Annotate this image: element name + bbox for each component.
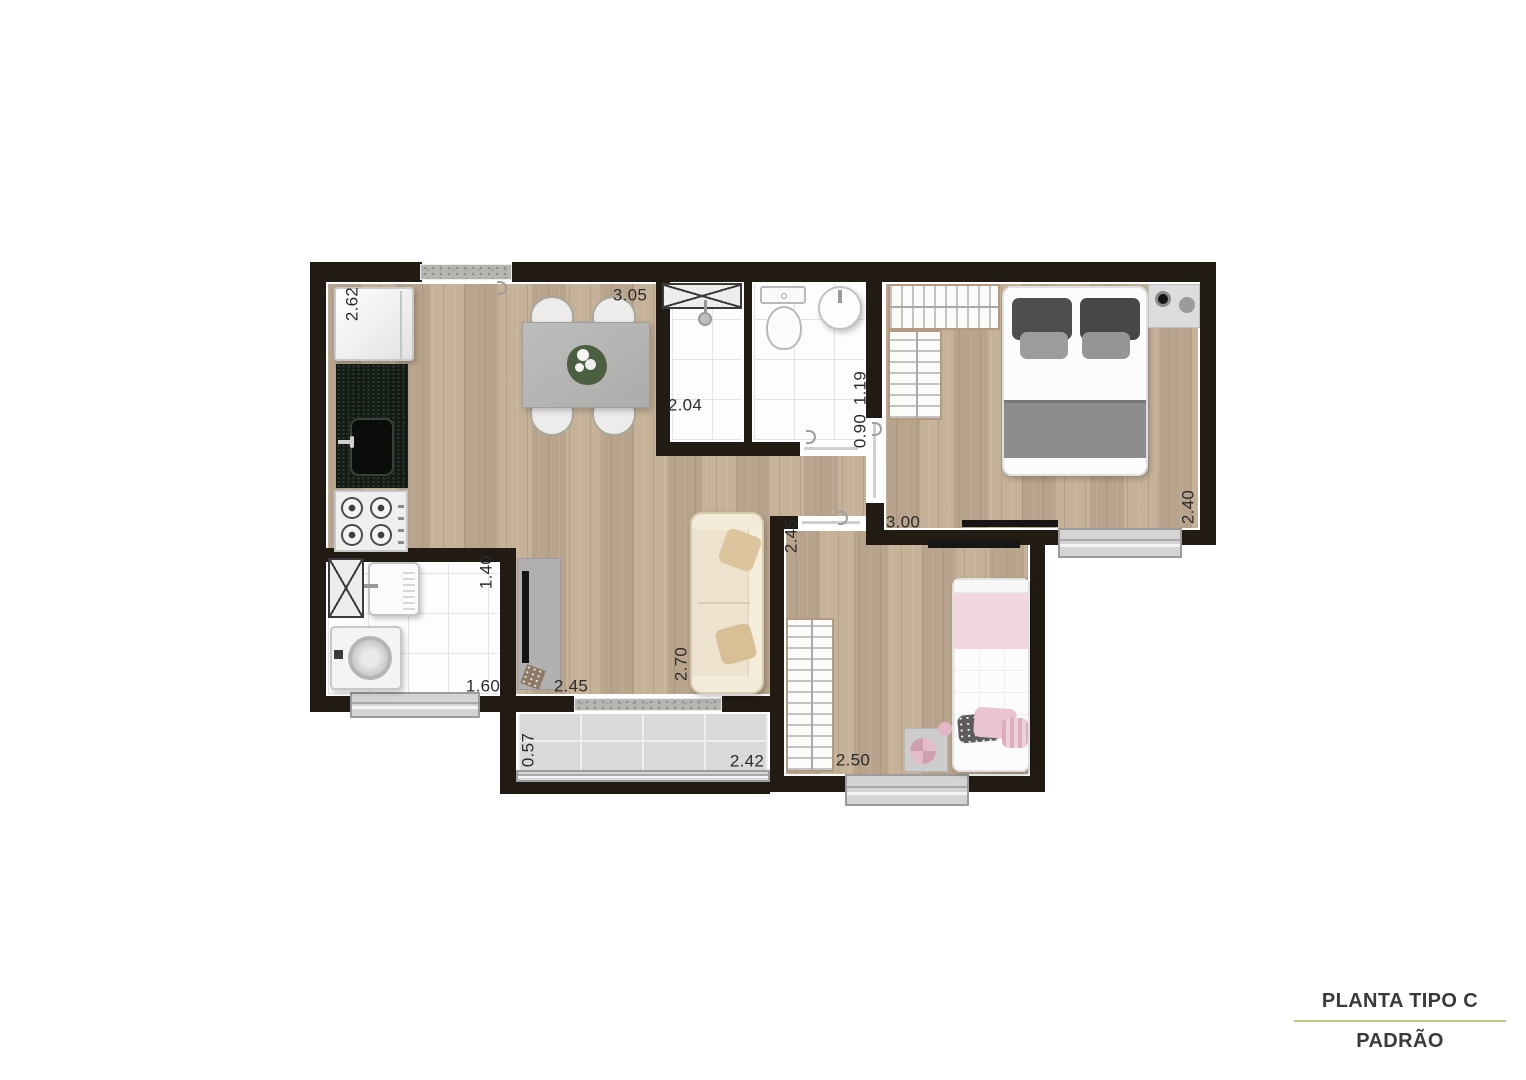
kitchen-counter xyxy=(336,364,408,488)
tv-rack xyxy=(517,558,561,690)
shower-arm xyxy=(704,300,707,314)
dimension-label: 3.00 xyxy=(886,514,920,531)
title-divider xyxy=(1294,1020,1506,1022)
bed2-pillow-striped xyxy=(1002,718,1028,748)
washer-drum xyxy=(348,636,392,680)
plan-title: PLANTA TIPO C xyxy=(1294,990,1506,1013)
bed-pillow-gray xyxy=(1082,332,1130,359)
single-bed xyxy=(952,578,1030,772)
stove-burner xyxy=(341,497,363,519)
stove-burner xyxy=(370,524,392,546)
toilet-bowl xyxy=(766,306,802,350)
wall-bedroom2-bottom-left xyxy=(770,776,847,792)
fridge-door-seam xyxy=(400,291,402,359)
bedroom2-window xyxy=(845,774,969,806)
bed2-sheet-fold xyxy=(954,580,1028,593)
wall-laundry-right xyxy=(500,548,516,792)
bedroom2-door-opening xyxy=(798,516,866,529)
double-bed xyxy=(1002,286,1148,476)
dimension-label: 2.45 xyxy=(554,678,588,695)
sofa-armrest xyxy=(692,676,762,692)
laundry-window xyxy=(350,692,480,718)
balcony-door-threshold xyxy=(574,698,722,711)
stove-burner xyxy=(341,524,363,546)
tv xyxy=(522,571,529,663)
dimension-label: 2.45 xyxy=(783,519,800,553)
wall-top-left xyxy=(310,262,422,282)
kitchen-faucet-spout xyxy=(350,436,354,448)
wall-hall-corner xyxy=(866,503,884,545)
tv-rack-decor xyxy=(520,664,546,690)
wall-left-exterior xyxy=(310,262,326,712)
washer-control xyxy=(334,650,343,659)
toilet-flush-button xyxy=(781,293,787,299)
flower-bloom xyxy=(575,363,584,372)
wall-bedroom2-bottom-right xyxy=(967,776,1045,792)
floor-plan-page: 2.62 3.05 2.04 1.19 0.90 3.00 2.40 1.40 … xyxy=(0,0,1526,1080)
wall-bathroom-bottom xyxy=(656,442,800,456)
dimension-label: 2.70 xyxy=(673,647,690,681)
dimension-label: 0.57 xyxy=(520,733,537,767)
sofa xyxy=(690,512,764,694)
dimension-label: 2.62 xyxy=(344,287,361,321)
dimension-label: 2.50 xyxy=(836,752,870,769)
dimension-label: 1.19 xyxy=(852,371,869,405)
toilet-tank xyxy=(760,286,806,304)
bed-blanket xyxy=(1004,400,1146,458)
pink-pouf xyxy=(910,738,936,764)
tank-ridges xyxy=(403,568,415,610)
basin-faucet-icon xyxy=(838,290,842,303)
nightstand-decor xyxy=(1179,297,1195,313)
dimension-label: 1.60 xyxy=(466,678,500,695)
bed-pillow-gray xyxy=(1020,332,1068,359)
stove-knobs xyxy=(398,498,404,544)
dimension-label: 1.40 xyxy=(478,555,495,589)
bed2-pink-blanket xyxy=(954,593,1028,649)
dimension-label: 0.90 xyxy=(852,414,869,448)
table-lamp-icon xyxy=(1155,291,1171,307)
wall-right-exterior xyxy=(1200,262,1216,545)
dining-table xyxy=(522,322,650,408)
entrance-door-threshold xyxy=(420,264,512,280)
nightstand xyxy=(1148,284,1200,328)
wall-balcony-bottom xyxy=(500,780,770,794)
bedroom2-wardrobe xyxy=(786,618,834,772)
bathroom-shaft-box xyxy=(662,283,742,309)
washing-machine xyxy=(330,626,402,690)
wall-bedroom2-right xyxy=(1030,545,1045,792)
stove-burner xyxy=(370,497,392,519)
dimension-label: 2.42 xyxy=(730,753,764,770)
title-block: PLANTA TIPO C PADRÃO xyxy=(1294,990,1506,1053)
bedroom1-window xyxy=(1058,528,1182,558)
pink-decor xyxy=(938,722,952,736)
bedroom2-track-bar xyxy=(928,541,1020,548)
balcony-rail xyxy=(516,770,770,782)
sofa-cushion-seam xyxy=(698,602,750,604)
flower-centerpiece xyxy=(567,345,607,385)
tank-faucet-icon xyxy=(364,584,378,588)
wall-top-main xyxy=(512,262,1216,282)
shower-head-icon xyxy=(698,312,712,326)
wall-bedroom2-left xyxy=(770,516,784,792)
kitchen-sink xyxy=(350,418,394,476)
plan-subtitle: PADRÃO xyxy=(1294,1030,1506,1053)
wall-bathroom-divider xyxy=(744,278,752,446)
dimension-label: 2.40 xyxy=(1180,490,1197,524)
bedroom1-track-bar xyxy=(962,520,1058,527)
laundry-shaft-box xyxy=(328,558,364,618)
wall-living-bottom-left xyxy=(516,696,574,712)
stove xyxy=(334,490,408,552)
bedroom1-wardrobe-top xyxy=(888,284,1000,330)
bedroom2-door-leaf xyxy=(802,521,860,524)
washbasin xyxy=(818,286,862,330)
dimension-label: 2.04 xyxy=(668,397,702,414)
bedroom1-wardrobe-side xyxy=(888,330,942,420)
laundry-tank xyxy=(368,562,420,616)
dimension-label: 3.05 xyxy=(613,287,647,304)
flower-bloom xyxy=(585,359,596,370)
